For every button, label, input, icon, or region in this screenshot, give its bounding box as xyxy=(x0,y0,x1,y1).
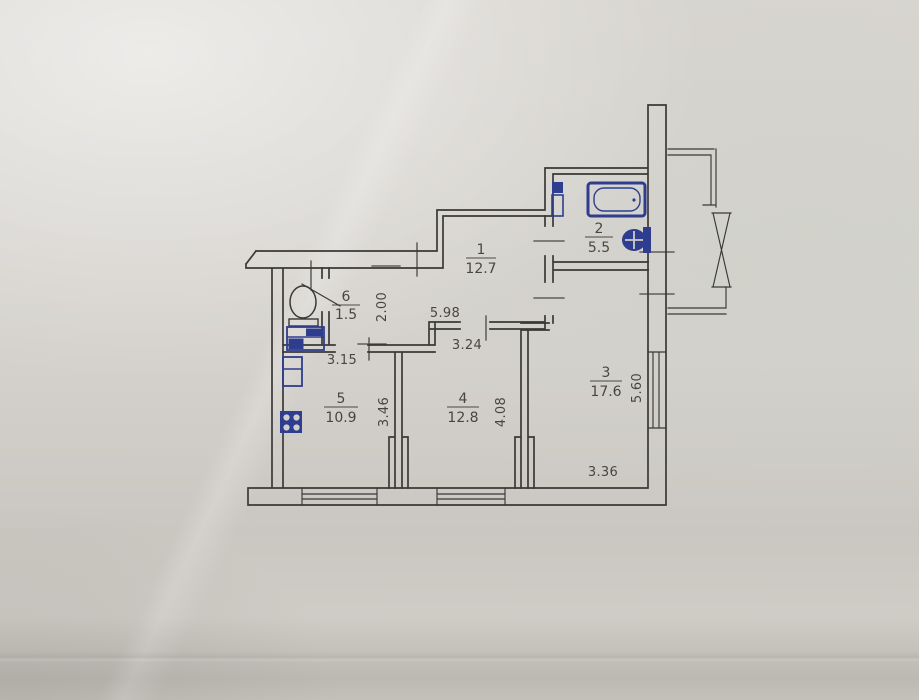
burner xyxy=(283,414,289,420)
photographed-paper-sheet: 1 12.7 2 5.5 3 17.6 4 12.8 5 xyxy=(0,0,919,700)
dim-5-60: 5.60 xyxy=(630,373,645,403)
room-3-area: 17.6 xyxy=(590,384,621,400)
room-5-number: 5 xyxy=(337,391,346,407)
vanity-fill-top xyxy=(306,329,323,337)
bathtub-drain xyxy=(632,198,635,201)
room-4-area: 12.8 xyxy=(447,410,478,426)
room-6-label: 6 1.5 xyxy=(332,289,360,323)
toilet-fixtures xyxy=(287,286,324,350)
dim-3-46: 3.46 xyxy=(377,397,392,427)
room-4-label: 4 12.8 xyxy=(447,391,479,426)
windows xyxy=(302,352,666,505)
refrigerator-icon xyxy=(283,357,302,386)
burner xyxy=(293,424,299,430)
window-room4 xyxy=(437,488,505,505)
room-5-label: 5 10.9 xyxy=(324,391,358,426)
room-4-number: 4 xyxy=(459,391,468,407)
exterior-walls xyxy=(246,105,666,505)
dim-3-36: 3.36 xyxy=(588,465,618,480)
dim-4-08: 4.08 xyxy=(494,397,509,427)
exterior-wall-lines xyxy=(246,105,666,505)
room-1-area: 12.7 xyxy=(465,261,496,277)
room-2-label: 2 5.5 xyxy=(585,221,613,256)
room-3-label: 3 17.6 xyxy=(590,365,622,400)
room-3-number: 3 xyxy=(602,365,611,381)
room-1-label: 1 12.7 xyxy=(465,242,496,277)
window-room3 xyxy=(648,352,666,428)
dim-2-00: 2.00 xyxy=(375,292,390,322)
dimension-ticks xyxy=(311,241,674,360)
burner xyxy=(293,414,299,420)
floor-plan-drawing: 1 12.7 2 5.5 3 17.6 4 12.8 5 xyxy=(0,0,919,700)
room-6-area: 1.5 xyxy=(335,307,357,323)
window-kitchen xyxy=(302,488,377,505)
toilet-tank xyxy=(289,319,318,326)
room-6-number: 6 xyxy=(342,289,351,305)
dim-3-24: 3.24 xyxy=(452,338,482,353)
stove-4-burner-icon xyxy=(280,411,302,433)
balcony-outline xyxy=(668,149,731,314)
tick-marks xyxy=(311,241,674,360)
room-2-area: 5.5 xyxy=(588,240,610,256)
balcony-railing xyxy=(668,149,731,314)
water-heater-icon xyxy=(552,182,563,193)
room-2-number: 2 xyxy=(595,221,604,237)
dim-3-15: 3.15 xyxy=(327,353,357,368)
toilet-icon xyxy=(290,286,316,318)
dim-5-98: 5.98 xyxy=(430,306,460,321)
room-5-area: 10.9 xyxy=(325,410,356,426)
burner xyxy=(283,424,289,430)
vanity-fill-bottom xyxy=(289,339,304,350)
room-1-number: 1 xyxy=(477,242,486,258)
